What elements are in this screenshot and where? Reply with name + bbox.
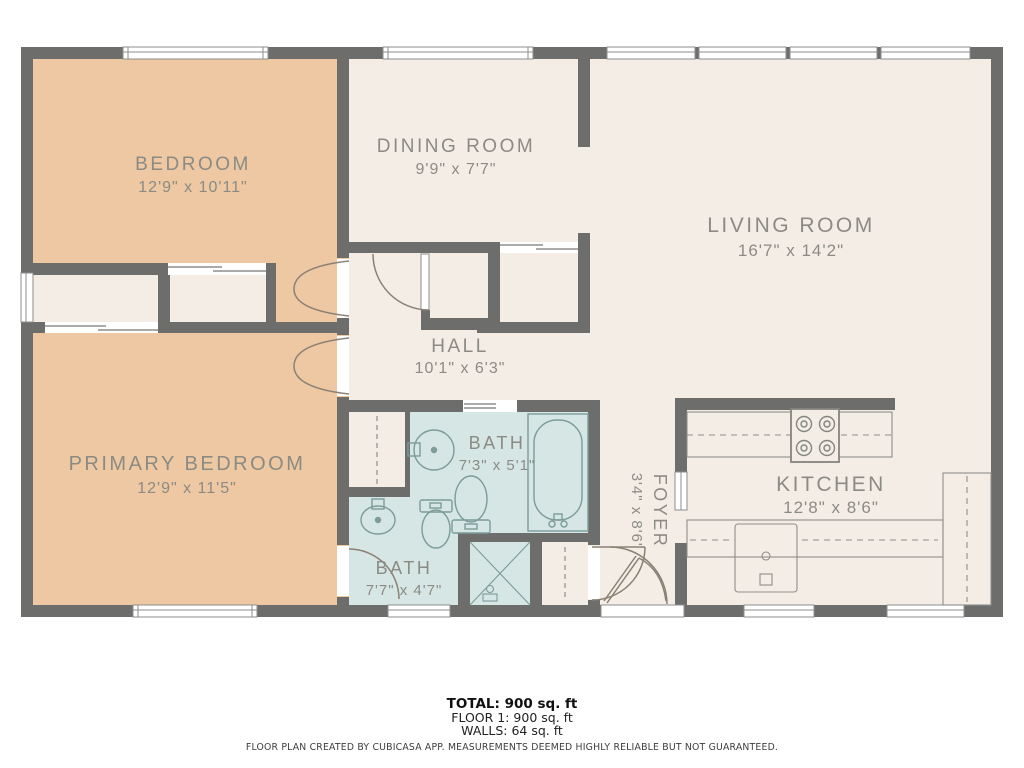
room-label-hall: HALL — [431, 336, 489, 357]
window — [887, 605, 964, 617]
window — [21, 273, 33, 322]
entry-threshold — [601, 605, 684, 617]
window — [744, 605, 814, 617]
stove-icon — [791, 409, 839, 462]
room-label-living-room: LIVING ROOM — [707, 214, 875, 237]
room-label-kitchen: KITCHEN — [776, 473, 886, 496]
room-label-primary-bedroom: PRIMARY BEDROOM — [69, 453, 306, 475]
room-dims-hall: 10'1" x 6'3" — [415, 360, 506, 377]
room-dims-bedroom: 12'9" x 10'11" — [138, 179, 247, 196]
window — [699, 47, 786, 59]
room-dims-dining-room: 9'9" x 7'7" — [416, 161, 497, 178]
window — [388, 605, 450, 617]
summary-footer: TOTAL: 900 sq. ft FLOOR 1: 900 sq. ft WA… — [246, 696, 778, 753]
window — [607, 47, 695, 59]
room-dims-living-room: 16'7" x 14'2" — [738, 241, 844, 260]
floor-plan-page: BEDROOM 12'9" x 10'11" DINING ROOM 9'9" … — [0, 0, 1024, 768]
room-label-foyer: FOYER — [650, 474, 670, 549]
room-dims-bath-upper: 7'3" x 5'1" — [459, 457, 536, 474]
walls-area-label: WALLS: 64 sq. ft — [461, 723, 563, 738]
window — [133, 605, 257, 617]
room-label-bedroom: BEDROOM — [135, 154, 251, 175]
room-dims-primary-bedroom: 12'9" x 11'5" — [137, 480, 237, 497]
window — [675, 472, 687, 510]
room-label-dining-room: DINING ROOM — [377, 136, 535, 157]
window — [790, 47, 877, 59]
room-label-bath-upper: BATH — [469, 433, 526, 453]
window — [123, 47, 268, 59]
room-dims-kitchen: 12'8" x 8'6" — [783, 498, 879, 517]
floor-plan-canvas: BEDROOM 12'9" x 10'11" DINING ROOM 9'9" … — [0, 0, 1024, 768]
window — [881, 47, 970, 59]
room-dims-bath-lower: 7'7" x 4'7" — [366, 582, 443, 599]
room-dims-foyer: 3'4" x 8'6" — [628, 473, 645, 550]
room-label-bath-lower: BATH — [376, 558, 433, 578]
disclaimer-label: FLOOR PLAN CREATED BY CUBICASA APP. MEAS… — [246, 742, 778, 753]
window — [383, 47, 533, 59]
